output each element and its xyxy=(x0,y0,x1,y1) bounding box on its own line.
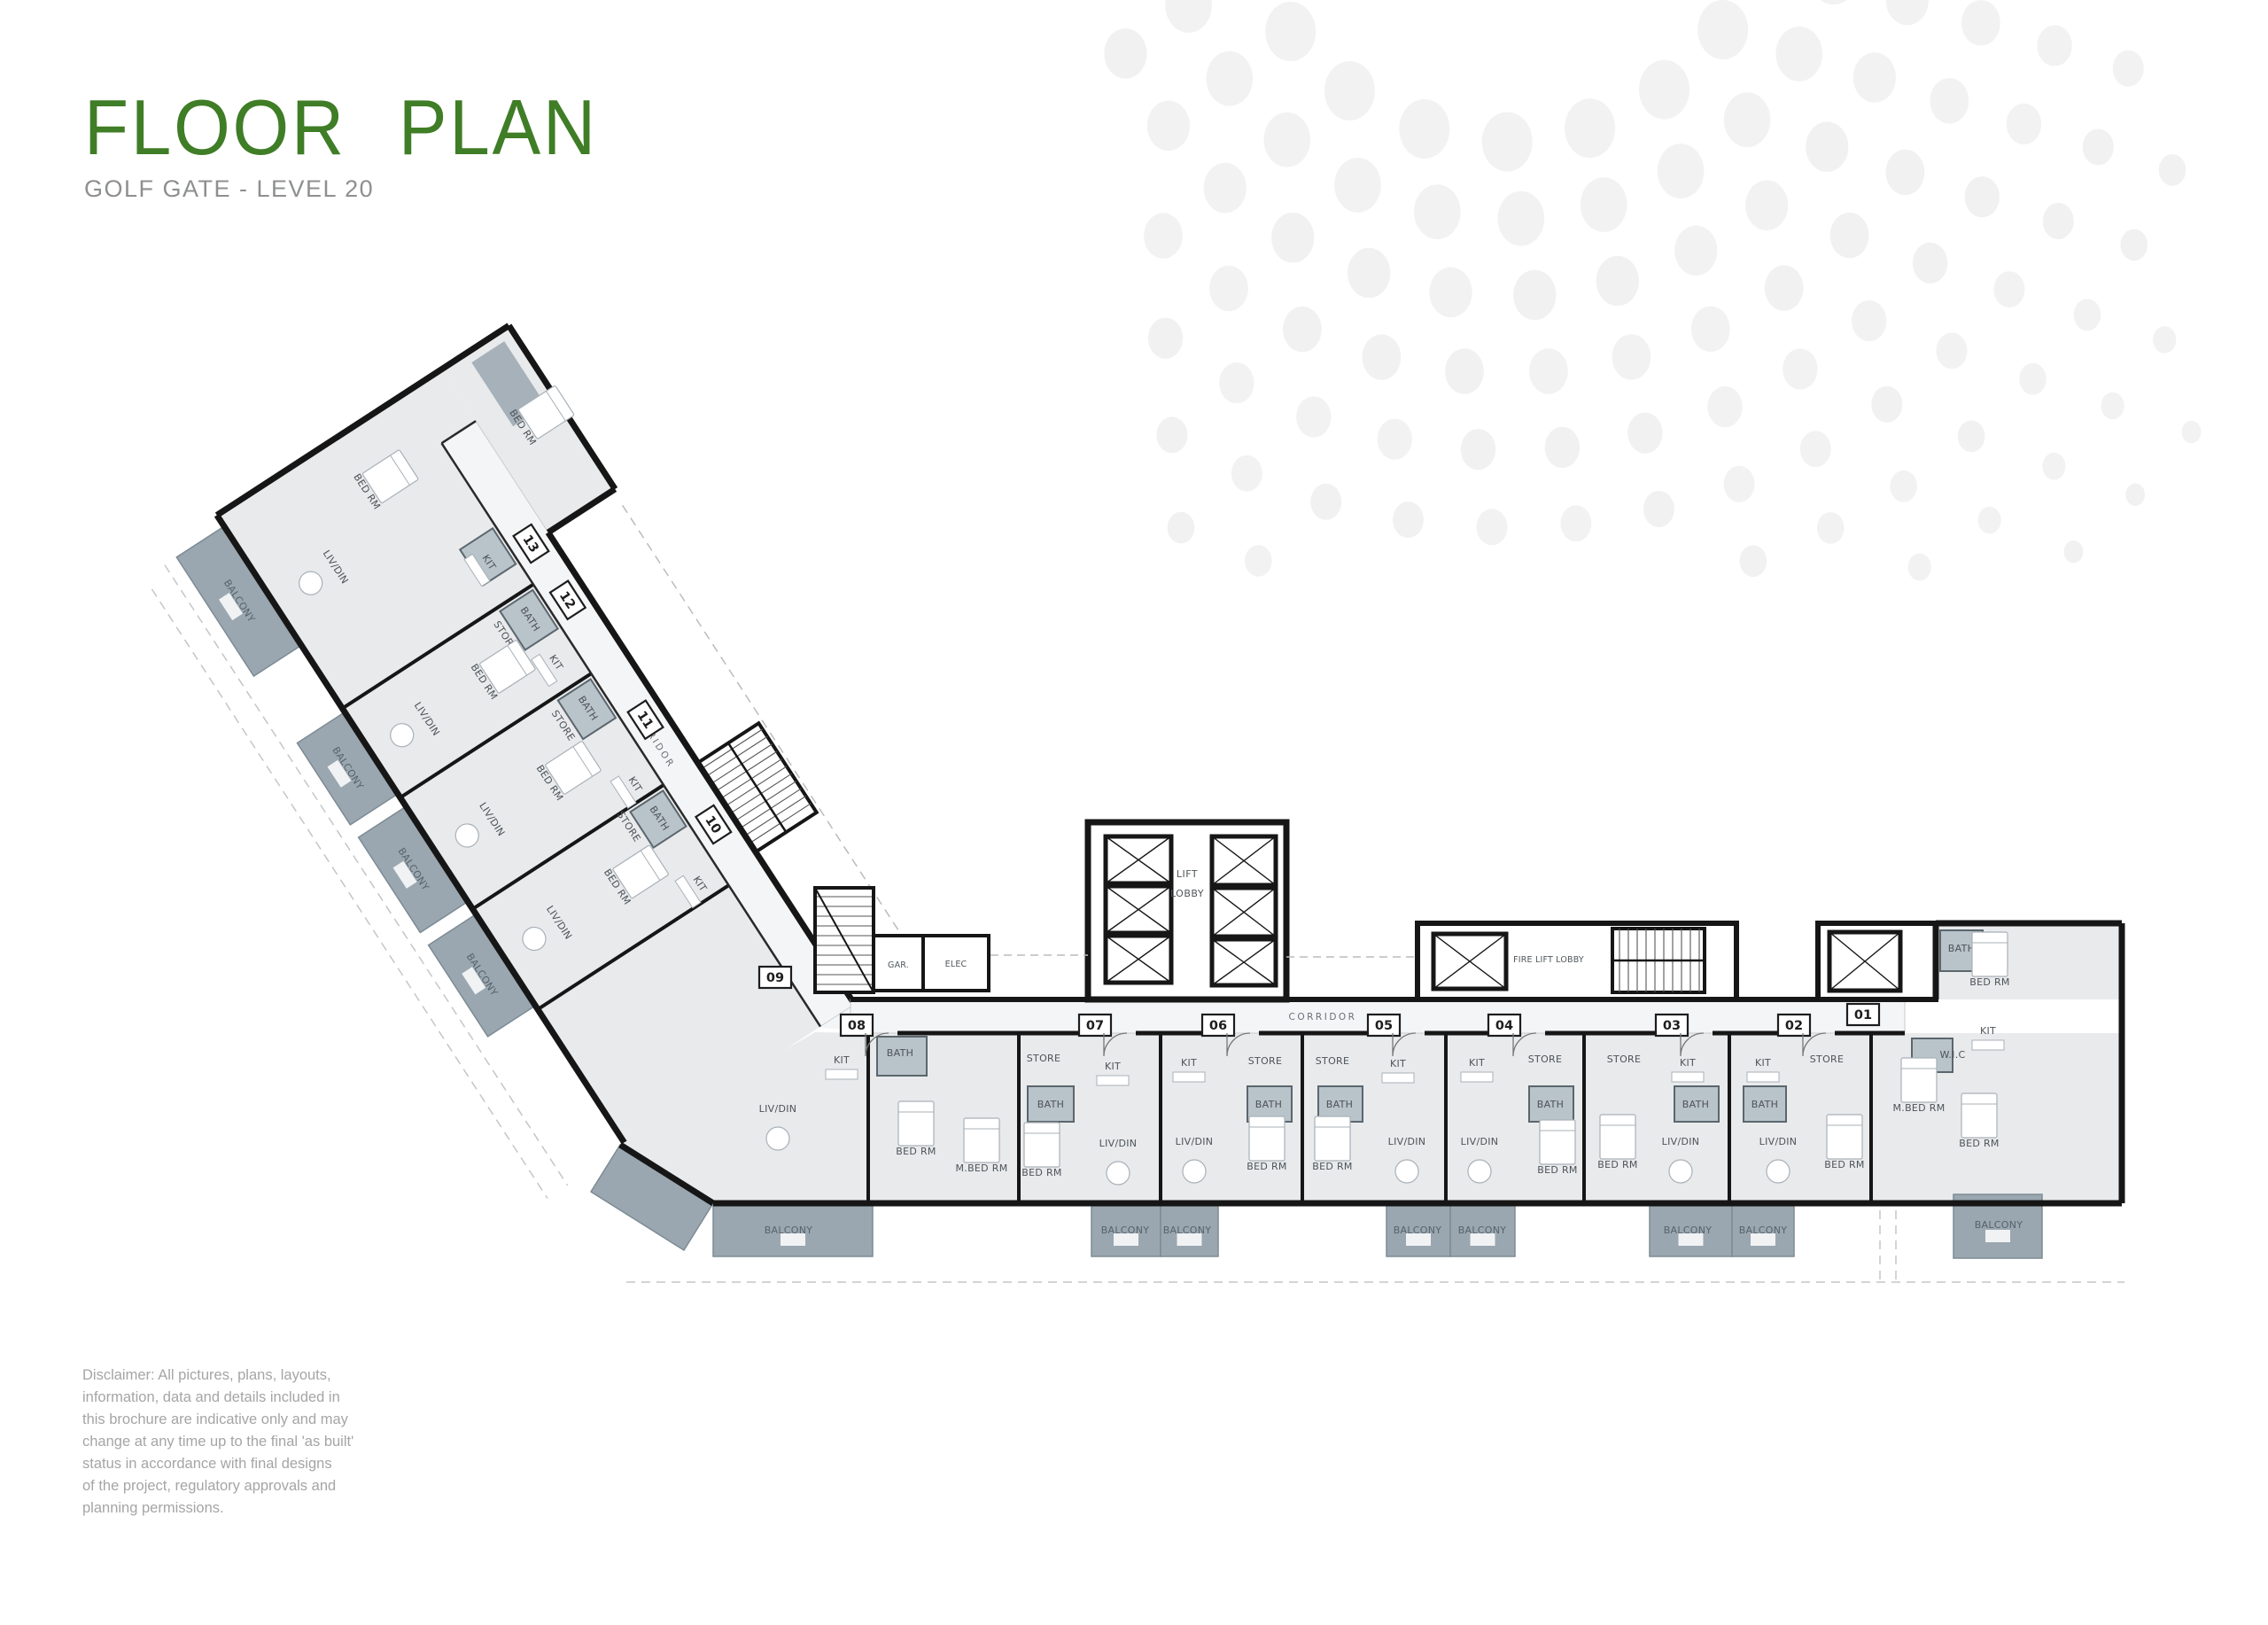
room-label: LIV/DIN xyxy=(1176,1136,1214,1147)
room-label: BALCONY xyxy=(1163,1225,1212,1236)
golfball-dot xyxy=(1283,307,1322,352)
unit-number: 02 xyxy=(1785,1019,1803,1033)
golfball-dot xyxy=(1612,334,1651,379)
golfball-dot xyxy=(1765,265,1804,310)
room-label: KIT xyxy=(1105,1061,1121,1072)
room-label: BED RM xyxy=(1597,1159,1637,1170)
room-label: KIT xyxy=(834,1054,850,1066)
golfball-dot xyxy=(2064,540,2084,563)
balcony-furniture xyxy=(1985,1230,2010,1242)
electrical-room-label: ELEC xyxy=(945,960,967,969)
golfball-dot xyxy=(1264,113,1311,167)
room-label: BATH xyxy=(1537,1099,1564,1110)
room-label: STORE xyxy=(1248,1055,1282,1067)
room-label: M.BED RM xyxy=(1893,1102,1946,1114)
golfball-dot xyxy=(1414,184,1461,239)
room-label: KIT xyxy=(1181,1057,1197,1069)
lift-lobby-label-1: LIFT xyxy=(1177,868,1198,880)
unit-number: 04 xyxy=(1495,1019,1513,1033)
golfball-dot xyxy=(1104,28,1146,79)
golfball-dot xyxy=(2159,154,2186,186)
golfball-dot xyxy=(1477,509,1508,545)
room-label: LIV/DIN xyxy=(1388,1136,1426,1147)
golfball-dot xyxy=(1697,0,1748,59)
lift-shaft xyxy=(1106,836,1171,883)
golfball-dot xyxy=(1674,225,1717,276)
golfball-dot xyxy=(1978,507,2001,534)
room-label: STORE xyxy=(1528,1054,1562,1065)
room-label: BATH xyxy=(1326,1099,1353,1110)
golfball-dot xyxy=(1209,266,1248,311)
golfball-dot xyxy=(1958,421,1985,453)
corridor-label: CORRIDOR xyxy=(1289,1012,1357,1022)
golfball-dot xyxy=(1513,270,1556,321)
room-label: BED RM xyxy=(1537,1164,1577,1176)
golfball-dot xyxy=(2113,51,2144,87)
lift-shaft xyxy=(1106,886,1171,933)
golfball-dot xyxy=(1207,51,1254,106)
golfball-dot xyxy=(2125,484,2145,506)
golfball-dot xyxy=(1908,554,1931,581)
golfball-dot xyxy=(2074,299,2101,330)
golfball-dot xyxy=(1886,150,1925,195)
golfball-dot xyxy=(2101,393,2124,420)
golfball-dot xyxy=(1961,0,2000,45)
golfball-dot xyxy=(1482,113,1533,172)
golfball-dot xyxy=(1830,213,1869,258)
room-label: BALCONY xyxy=(1664,1225,1713,1236)
room-label: BED RM xyxy=(896,1146,936,1157)
room-label: BALCONY xyxy=(1739,1225,1788,1236)
unit-number: 01 xyxy=(1854,1008,1872,1022)
golfball-dot xyxy=(1296,396,1331,437)
golfball-dot xyxy=(1596,256,1639,307)
golfball-dot xyxy=(1148,318,1183,359)
golfball-dot xyxy=(1529,348,1568,393)
golfball-dot xyxy=(2083,128,2114,165)
room-label: KIT xyxy=(1755,1057,1771,1069)
floor-plan: CORRIDOR BED RMKITBED RMLIV/DINBALCONYKI… xyxy=(0,0,2268,1625)
golfball-dot xyxy=(1800,431,1831,467)
lift-shaft xyxy=(1212,939,1276,985)
golfball-dot xyxy=(2019,363,2047,395)
golfball-dot xyxy=(1545,427,1580,468)
golfball-dot xyxy=(2121,229,2148,261)
golfball-dot xyxy=(1643,491,1674,527)
golfball-dot xyxy=(1707,386,1742,427)
golfball-dot xyxy=(1639,60,1689,120)
room-label: LIV/DIN xyxy=(1099,1138,1138,1149)
room-label: BATH xyxy=(1037,1099,1064,1110)
room-label: STORE xyxy=(1316,1055,1349,1067)
lift-shaft xyxy=(1212,836,1276,885)
room-label: STORE xyxy=(1810,1054,1844,1065)
golfball-dot xyxy=(1724,466,1755,502)
room-label: M.BED RM xyxy=(956,1162,1008,1174)
lift-shaft xyxy=(1212,888,1276,937)
room-label: BALCONY xyxy=(1101,1225,1150,1236)
golfball-dot xyxy=(1871,386,1902,423)
lift-lobby-label-2: LOBBY xyxy=(1170,888,1204,899)
room-label: BED RM xyxy=(1247,1161,1286,1172)
room-label: KIT xyxy=(1390,1058,1406,1069)
golfball-dot xyxy=(1724,92,1771,147)
golfball-dot xyxy=(1691,307,1730,352)
golfball-dot xyxy=(1245,545,1272,577)
unit-number: 03 xyxy=(1663,1019,1681,1033)
room-label: BATH xyxy=(1682,1099,1709,1110)
golfball-dot xyxy=(1461,429,1495,470)
room-label: BATH xyxy=(887,1047,913,1059)
room-label: LIV/DIN xyxy=(759,1103,797,1115)
room-label: KIT xyxy=(1680,1057,1696,1069)
unit-number: 09 xyxy=(766,971,784,985)
golfball-dot xyxy=(1993,271,2024,307)
golfball-dot xyxy=(1930,78,1969,123)
room-label: BALCONY xyxy=(765,1225,813,1236)
room-label: KIT xyxy=(1980,1025,1996,1037)
room-label: BED RM xyxy=(1824,1159,1864,1170)
golfball-dot xyxy=(1144,213,1183,258)
room-label: BED RM xyxy=(1969,976,2009,988)
room-label: BATH xyxy=(1751,1099,1778,1110)
lift-shaft xyxy=(1106,936,1171,983)
room-label: BALCONY xyxy=(1975,1219,2023,1231)
golfball-dot xyxy=(1165,0,1212,33)
golfball-dot xyxy=(2043,203,2074,239)
golfball-dot xyxy=(1168,512,1195,544)
golfball-dot xyxy=(1913,243,1947,284)
room-label: LIV/DIN xyxy=(1662,1136,1700,1147)
lift-shaft xyxy=(1829,932,1900,991)
golfball-dot xyxy=(1783,348,1817,389)
unit-number: 07 xyxy=(1086,1019,1104,1033)
golfball-dot xyxy=(1393,501,1424,538)
room-label: LIV/DIN xyxy=(1759,1136,1798,1147)
golfball-dot xyxy=(1204,163,1247,214)
unit-number: 06 xyxy=(1209,1019,1227,1033)
golfball-dot xyxy=(1776,27,1823,82)
room-label: STORE xyxy=(1607,1054,1641,1065)
golfball-dot xyxy=(1658,144,1705,198)
room-label: KIT xyxy=(1469,1057,1485,1069)
golfball-dot xyxy=(1310,484,1341,520)
golfball-dot xyxy=(1271,213,1314,263)
golfball-dot xyxy=(1852,300,1886,341)
golfball-dot xyxy=(2007,104,2041,144)
room-label: STORE xyxy=(1027,1053,1060,1064)
golfball-dot xyxy=(1890,470,1917,502)
garbage-room-label: GAR. xyxy=(888,960,909,970)
lift-shaft xyxy=(1433,934,1506,989)
fire-lift-lobby-label: FIRE LIFT LOBBY xyxy=(1513,955,1584,965)
golfball-dot xyxy=(1429,268,1472,318)
golfball-dot xyxy=(1745,180,1788,230)
golfball-dot xyxy=(1334,158,1381,213)
golfball-dot xyxy=(2042,453,2065,480)
room-label: BED RM xyxy=(1312,1161,1352,1172)
golfball-dot xyxy=(1445,348,1484,393)
golfball-dot xyxy=(1156,416,1187,453)
room-label: BED RM xyxy=(1959,1138,1999,1149)
unit-number: 05 xyxy=(1375,1019,1393,1033)
golfball-dot xyxy=(1324,61,1375,121)
room-label: BATH xyxy=(1948,943,1975,954)
golfball-dot xyxy=(2153,326,2176,354)
golfball-dot xyxy=(1378,419,1412,460)
golfball-dot xyxy=(1886,0,1929,25)
golfball-dot xyxy=(1740,545,1767,577)
golfball-dot xyxy=(1265,2,1316,61)
golfball-dot xyxy=(1565,98,1615,158)
golfball-dot xyxy=(1498,191,1545,246)
room-label: BATH xyxy=(1255,1099,1282,1110)
golfball-dot xyxy=(1937,332,1968,369)
unit-number: 08 xyxy=(848,1019,866,1033)
room-label: LIV/DIN xyxy=(1461,1136,1499,1147)
golfball-dot xyxy=(1399,99,1449,159)
golfball-dot xyxy=(1363,334,1402,379)
golfball-dot xyxy=(1231,455,1262,492)
room-label: BALCONY xyxy=(1394,1225,1442,1236)
golfball-dot xyxy=(1853,52,1896,103)
room-label: W.I.C xyxy=(1939,1049,1965,1061)
golfball-dot xyxy=(1810,0,1857,4)
staircase xyxy=(1612,929,1705,992)
golfball-dot xyxy=(1219,362,1254,403)
golfball-dot xyxy=(2182,421,2202,443)
golfball-dot xyxy=(1806,121,1848,172)
room-label: BED RM xyxy=(1021,1167,1061,1178)
golfball-dot xyxy=(1817,512,1845,544)
golfball-pattern xyxy=(1104,0,2201,580)
golfball-dot xyxy=(1965,176,2000,217)
golfball-dot xyxy=(1627,413,1662,454)
golfball-dot xyxy=(1147,101,1190,152)
lift-shafts xyxy=(1106,836,1900,991)
golfball-dot xyxy=(1560,505,1591,541)
room-label: BALCONY xyxy=(1458,1225,1507,1236)
golfball-dot xyxy=(1581,177,1627,232)
golfball-dot xyxy=(1348,248,1390,299)
golfball-dot xyxy=(2037,25,2071,66)
